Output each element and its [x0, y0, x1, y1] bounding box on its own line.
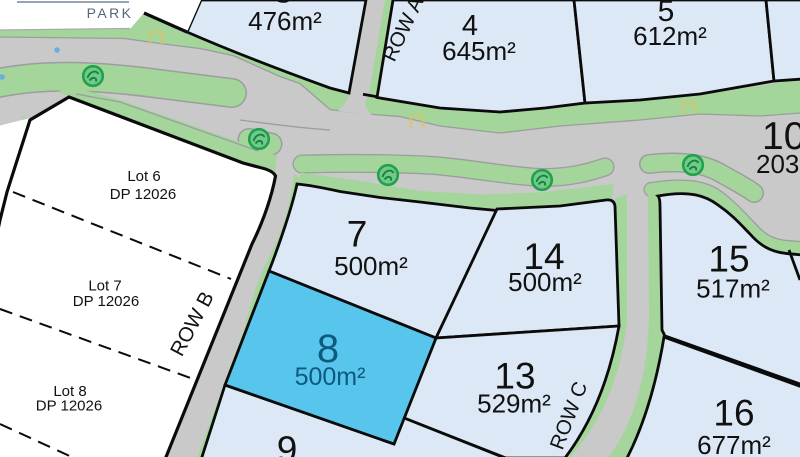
- svg-text:500m²: 500m²: [334, 251, 408, 281]
- svg-text:500m²: 500m²: [508, 267, 582, 297]
- svg-text:517m²: 517m²: [696, 274, 770, 304]
- svg-text:DP 12026: DP 12026: [73, 293, 139, 310]
- svg-text:645m²: 645m²: [442, 36, 516, 66]
- svg-text:2038: 2038: [756, 149, 800, 179]
- svg-text:529m²: 529m²: [477, 389, 551, 419]
- svg-text:16: 16: [713, 393, 754, 434]
- svg-text:7: 7: [347, 214, 368, 255]
- svg-text:612m²: 612m²: [633, 21, 707, 51]
- svg-text:DP 12026: DP 12026: [110, 186, 176, 203]
- svg-text:500m²: 500m²: [295, 363, 366, 391]
- svg-text:Lot 6: Lot 6: [127, 168, 160, 185]
- svg-text:PARK: PARK: [87, 5, 134, 21]
- svg-text:9: 9: [277, 429, 298, 457]
- svg-text:Lot 7: Lot 7: [88, 278, 121, 295]
- svg-text:DP 12026: DP 12026: [36, 398, 102, 415]
- svg-text:677m²: 677m²: [697, 430, 771, 457]
- svg-text:476m²: 476m²: [248, 6, 322, 36]
